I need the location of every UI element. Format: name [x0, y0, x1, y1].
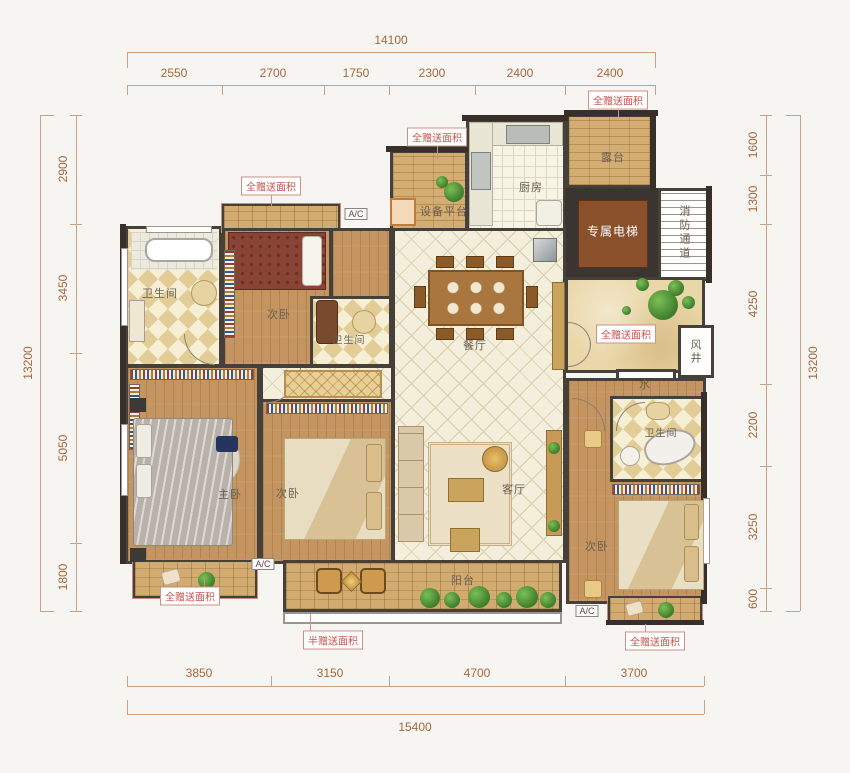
plant-balcony [420, 588, 440, 608]
window-bathroom-left [121, 248, 128, 326]
dim-right-seg: 4250 [746, 291, 760, 318]
dim-tick [127, 52, 128, 68]
ac-outdoor-unit [390, 198, 416, 226]
dim-line-left-total [40, 115, 41, 611]
plant-balcony [540, 592, 556, 608]
nightstand-master [130, 548, 146, 562]
dining-table [428, 270, 524, 326]
plant-gift-area [682, 296, 695, 309]
kitchen-sink [506, 125, 550, 144]
label-bathroom-middle: 卫生间 [333, 332, 366, 347]
label-dining: 餐厅 [463, 337, 487, 353]
ac-tag-top: A/C [344, 208, 367, 220]
window-master-left [121, 424, 128, 496]
dim-tick [760, 384, 772, 385]
gift-tag-terrace: 全赠送面积 [588, 91, 648, 110]
dim-line-right-total [800, 115, 801, 611]
dim-tick [40, 115, 54, 116]
dim-tick [70, 224, 82, 225]
ac-vent-square [584, 430, 602, 448]
ac-vent-square [584, 580, 602, 598]
dim-tick [127, 85, 128, 95]
gift-tag-bottom-right: 全赠送面积 [625, 632, 685, 651]
dim-bottom-seg: 3700 [621, 666, 648, 680]
gift-tag-stone-area: 全赠送面积 [596, 325, 656, 344]
plant-balcony [444, 592, 460, 608]
label-living: 客厅 [502, 481, 526, 497]
dim-tick [760, 175, 772, 176]
plant-gift-area [622, 306, 631, 315]
dining-sideboard [552, 282, 565, 370]
label-bathroom-right: 卫生间 [645, 425, 678, 440]
dim-tick [655, 85, 656, 95]
bookshelf-master-top [130, 369, 254, 380]
dim-top-seg: 2550 [161, 66, 188, 80]
dim-tick [565, 85, 566, 95]
label-master-bedroom: 主卧 [218, 486, 242, 502]
dim-left-seg: 5050 [56, 435, 70, 462]
dim-top-seg: 2700 [260, 66, 287, 80]
dim-line-bottom-segs [127, 686, 704, 687]
plant-balcony [516, 586, 538, 608]
wall-fire-right [706, 186, 712, 283]
dim-left-seg: 3450 [56, 275, 70, 302]
toilet-middle-bath [352, 310, 376, 334]
coffee-table-living [448, 478, 484, 502]
dim-tick [70, 543, 82, 544]
pillow-master [136, 464, 152, 498]
plant-gift-right [658, 602, 674, 618]
dim-right-seg: 2200 [746, 412, 760, 439]
dim-line-top-total [127, 52, 655, 53]
dim-bottom-seg: 3850 [186, 666, 213, 680]
dim-tick [271, 676, 272, 686]
dining-chair [496, 256, 514, 268]
dim-right-seg: 600 [746, 589, 760, 609]
dim-tick [760, 115, 772, 116]
label-equipment-platform: 设备平台 [420, 203, 468, 219]
label-bedroom-middle: 次卧 [276, 485, 300, 501]
plant-balcony [496, 592, 512, 608]
balcony-railing [283, 612, 562, 624]
dim-tick [760, 224, 772, 225]
room-closet-hall [330, 228, 392, 302]
dim-line-top-segs [127, 85, 655, 86]
label-water: 水 [639, 376, 651, 392]
bookshelf-bedroom-right [612, 484, 700, 495]
nightstand-master [130, 398, 146, 412]
dim-tick [222, 85, 223, 95]
gift-tag-balcony-half: 半赠送面积 [303, 631, 363, 650]
dim-top-total: 14100 [374, 33, 407, 47]
vanity-topleft [129, 300, 145, 342]
dim-line-right-segs [766, 115, 767, 611]
label-balcony: 阳台 [451, 572, 475, 588]
toilet-topleft [191, 280, 217, 306]
wall-kitchen-top [462, 115, 568, 121]
plant-equipment-small [436, 176, 448, 188]
dim-top-seg: 2300 [419, 66, 446, 80]
toilet-right-bath [646, 402, 670, 420]
sofa-living [398, 426, 424, 542]
wall-equipment-top [386, 146, 468, 152]
cabinet-living-bottom [450, 528, 480, 552]
dim-bottom-seg: 3150 [317, 666, 344, 680]
ac-tag-bottom-left: A/C [251, 558, 274, 570]
balcony-chair [360, 568, 386, 594]
dining-chair [436, 256, 454, 268]
gift-tag-master-bay: 全赠送面积 [160, 587, 220, 606]
dim-tick [40, 611, 54, 612]
pillow-bedroom-right [684, 546, 699, 582]
dim-top-seg: 2400 [597, 66, 624, 80]
dim-left-seg: 2900 [56, 156, 70, 183]
pillow-bedroom-right [684, 504, 699, 540]
sink-right-bath [620, 446, 640, 466]
dim-left-seg: 1800 [56, 564, 70, 591]
dining-chair-end [526, 286, 538, 308]
dim-left-total: 13200 [21, 346, 35, 379]
plant-gift-area [636, 278, 649, 291]
kitchen-cabinet [536, 200, 562, 226]
dim-top-seg: 2400 [507, 66, 534, 80]
dim-tick [324, 85, 325, 95]
dim-tick [704, 676, 705, 686]
gift-tag-equipment: 全赠送面积 [407, 128, 467, 147]
bathtub-topleft [145, 238, 213, 262]
dim-tick [786, 115, 800, 116]
dim-tick [127, 700, 128, 714]
dim-right-seg: 1300 [746, 186, 760, 213]
dim-tick [475, 85, 476, 95]
dim-right-seg: 1600 [746, 132, 760, 159]
label-wind-shaft: 风井 [687, 339, 703, 365]
hallway-runner-rug [284, 370, 382, 398]
dim-bottom-total: 15400 [398, 720, 431, 734]
dining-chair [496, 328, 514, 340]
label-bathroom-topleft: 卫生间 [142, 285, 178, 301]
dining-chair [466, 256, 484, 268]
dim-bottom-seg: 4700 [464, 666, 491, 680]
wardrobe-top-bedroom [224, 250, 235, 338]
dim-tick [70, 115, 82, 116]
balcony-chair [316, 568, 342, 594]
dining-cabinet-gray [533, 238, 557, 262]
dim-top-seg: 1750 [343, 66, 370, 80]
label-elevator: 专属电梯 [587, 223, 639, 240]
wall-gift-strip-bottom [606, 620, 704, 625]
label-bedroom-top: 次卧 [267, 306, 291, 322]
dining-chair [436, 328, 454, 340]
dim-tick [760, 611, 772, 612]
round-table-living [482, 446, 508, 472]
dim-tick [786, 611, 800, 612]
dim-tick [389, 676, 390, 686]
dim-tick [127, 676, 128, 686]
dim-line-bottom-total [127, 714, 704, 715]
plant-living [548, 520, 560, 532]
pillow-bedroom-middle [366, 492, 382, 530]
dim-tick [760, 588, 772, 589]
wall-terrace-right [650, 112, 656, 190]
dim-tick [70, 353, 82, 354]
bookshelf-bedroom-middle [266, 403, 388, 414]
label-bedroom-right: 次卧 [585, 538, 609, 554]
label-kitchen: 厨房 [519, 179, 543, 195]
dim-line-left-segs [76, 115, 77, 611]
pillow-bedroom-middle [366, 444, 382, 482]
cushion-master [216, 436, 238, 452]
dim-tick [565, 676, 566, 686]
kitchen-stove [471, 152, 491, 190]
window-bedroom-right [703, 498, 710, 564]
plant-balcony [468, 586, 490, 608]
dining-chair-end [414, 286, 426, 308]
dim-tick [70, 611, 82, 612]
plant-gift-area [668, 280, 684, 296]
gift-tag-bay-top: 全赠送面积 [241, 177, 301, 196]
dim-right-total: 13200 [806, 346, 820, 379]
dim-tick [760, 466, 772, 467]
window-bathroom-top [146, 226, 212, 233]
ac-tag-bottom-right: A/C [575, 605, 598, 617]
pillow-master [136, 424, 152, 458]
floorplan-canvas: 卫生间 次卧 卫生间 设备平台 厨房 露台 专属电梯 消防通道 餐厅 风井 水 … [0, 0, 850, 773]
dim-right-seg: 3250 [746, 514, 760, 541]
dim-tick [389, 85, 390, 95]
plant-living [548, 442, 560, 454]
dim-tick [655, 52, 656, 68]
label-fire-corridor: 消防通道 [676, 205, 692, 261]
wall-terrace-top [564, 110, 658, 116]
pillow-top-bedroom [302, 236, 322, 286]
label-terrace: 露台 [601, 149, 625, 165]
dim-tick [704, 700, 705, 714]
